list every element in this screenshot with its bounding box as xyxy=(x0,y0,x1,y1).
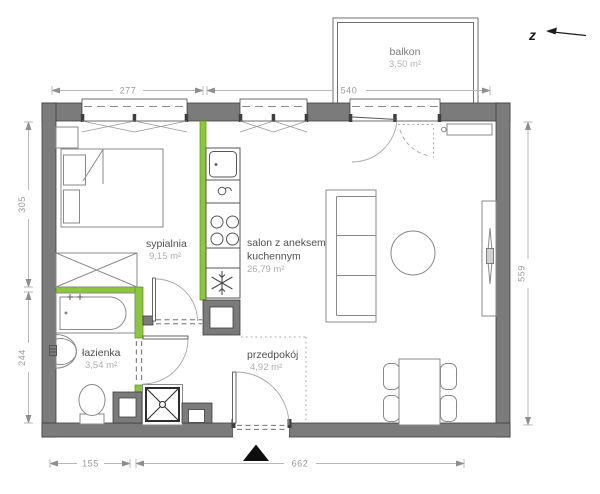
radiator xyxy=(442,124,493,135)
bathroom-shaft xyxy=(113,392,142,423)
label-bedroom: sypialnia xyxy=(146,238,187,250)
toilet xyxy=(79,385,105,425)
ventilation-shaft-x-icon xyxy=(143,385,183,426)
tv-unit xyxy=(482,201,496,316)
dining-table xyxy=(399,359,440,425)
north-arrow-icon: z xyxy=(528,27,586,43)
label-bathroom: łazienka xyxy=(82,347,121,359)
fridge-snowflake-icon xyxy=(212,271,233,295)
coffee-table xyxy=(391,231,435,275)
kitchen-shaft xyxy=(203,300,240,335)
bedroom-furniture xyxy=(56,127,163,287)
floor-plan-canvas: 277 540 305 244 559 155 66 xyxy=(0,0,600,494)
bedroom-door xyxy=(153,278,203,324)
hallway-shaft xyxy=(182,403,212,423)
sofa xyxy=(326,190,376,322)
window-bedroom xyxy=(81,99,188,132)
bathtub xyxy=(56,293,135,333)
window-balcony-door xyxy=(349,99,441,122)
area-bathroom: 3,54 m² xyxy=(85,360,117,371)
balcony-door xyxy=(352,117,434,162)
area-hallway: 4,92 m² xyxy=(250,362,282,373)
nightstand xyxy=(56,127,78,148)
wardrobe xyxy=(56,253,137,287)
dim-top-window: 277 xyxy=(120,86,137,96)
entrance-triangle-icon xyxy=(243,445,269,462)
label-hallway: przedpokój xyxy=(247,349,298,361)
bed xyxy=(61,149,163,227)
label-living-2: kuchennym xyxy=(247,251,301,263)
dim-bottom-left: 155 xyxy=(82,459,99,469)
dining-set xyxy=(384,359,457,425)
north-label: z xyxy=(528,27,536,43)
dim-right-side: 559 xyxy=(517,265,527,282)
label-balcony: balkon xyxy=(390,46,421,58)
area-living: 26,79 m² xyxy=(247,264,285,275)
floor-plan-svg: 277 540 305 244 559 155 66 xyxy=(0,0,600,494)
faucet-icon xyxy=(218,187,231,195)
entrance-door xyxy=(232,372,292,437)
dim-top-balcony: 540 xyxy=(341,86,358,96)
stove-burners-icon xyxy=(211,216,239,245)
label-living-1: salon z aneksem xyxy=(247,237,326,249)
area-balcony: 3,50 m² xyxy=(389,59,421,70)
dim-left-lower: 244 xyxy=(17,349,27,366)
area-bedroom: 9,15 m² xyxy=(149,251,181,262)
window-kitchen xyxy=(239,99,308,132)
dim-bottom-right: 662 xyxy=(292,459,309,469)
kitchen-sink xyxy=(210,152,237,178)
dim-left-upper: 305 xyxy=(17,196,27,213)
bathroom-door xyxy=(136,336,188,384)
